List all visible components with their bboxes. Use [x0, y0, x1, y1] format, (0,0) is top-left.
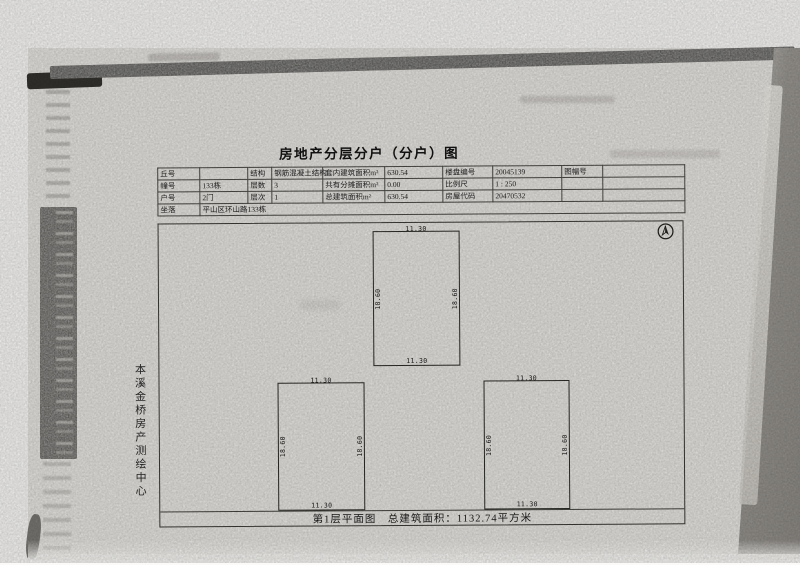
surveying-agency-label: 本溪金桥房产测绘中心: [131, 364, 148, 509]
cell-inner-area-label: 套内建筑面积m²: [323, 167, 385, 179]
dimension-label: 11.30: [311, 501, 332, 509]
cell-empty: [562, 189, 603, 201]
cell-level-label: 层次: [248, 191, 272, 203]
unit-outline-bottom-left: 11.30 11.30 18.60 18.60: [278, 382, 366, 511]
dimension-label: 11.30: [517, 500, 538, 508]
cell-building-no-label: 幢号: [158, 180, 200, 192]
cell-address-value: 平山区环山路133栋: [200, 201, 685, 216]
unit-outline-top: 11.30 11.30 18.60 18.60: [373, 231, 461, 367]
floor-plan-frame: 11.30 11.30 18.60 18.60 11.30 11.30 18.6…: [158, 220, 686, 527]
cell-shared-area-value: 0.00: [385, 178, 443, 190]
dimension-label: 18.60: [451, 287, 459, 309]
scan-bottom-fade: [28, 540, 800, 560]
unit-outline-bottom-right: 11.30 11.30 18.60 18.60: [483, 380, 570, 510]
cell-empty: [603, 177, 685, 190]
cell-house-code-label: 房屋代码: [443, 190, 493, 202]
plan-caption: 第1层平面图 总建筑面积：1132.74平方米: [160, 508, 684, 526]
cell-unit-no-value: 2门: [200, 191, 248, 203]
cell-scale-label: 比例尺: [443, 178, 493, 190]
cell-empty: [603, 189, 685, 202]
dimension-label: 18.60: [279, 436, 287, 458]
cell-scale-value: 1 : 250: [493, 178, 562, 190]
scanned-document-page: 房地产分层分户（分户）图 丘号 结构 钢筋混凝土结构 套内建筑面积m² 630.…: [0, 0, 800, 563]
table-row: 坐落 平山区环山路133栋: [158, 201, 685, 216]
cell-total-area-label: 总建筑面积m²: [323, 191, 385, 203]
dimension-label: 18.60: [374, 288, 382, 310]
dimension-label: 18.60: [356, 435, 364, 457]
north-arrow-icon: [657, 222, 675, 240]
cell-unit-no-label: 户号: [158, 192, 200, 204]
page-title: 房地产分层分户（分户）图: [249, 141, 489, 162]
cell-level-value: 1: [272, 191, 323, 203]
cell-total-area-value: 630.54: [385, 190, 443, 202]
cell-plot-no-value: [200, 167, 248, 179]
dimension-label: 18.60: [485, 434, 493, 456]
cell-structure-value: 钢筋混凝土结构: [272, 167, 323, 179]
cell-sheet-no-value: [603, 165, 685, 178]
dimension-label: 18.60: [561, 433, 569, 455]
dimension-label: 11.30: [406, 357, 427, 365]
cell-inner-area-value: 630.54: [385, 166, 443, 178]
cell-sheet-no-label: 图幅号: [562, 165, 603, 177]
cell-structure-label: 结构: [248, 167, 272, 179]
dimension-label: 11.30: [406, 225, 427, 233]
cell-shared-area-label: 共有分摊面积m²: [323, 179, 385, 191]
cell-plot-no-label: 丘号: [158, 168, 200, 180]
cell-empty: [562, 177, 603, 189]
cell-estate-no-label: 楼盘编号: [443, 166, 493, 178]
cell-house-code-value: 20470532: [493, 190, 562, 202]
dimension-label: 11.30: [516, 374, 537, 382]
cell-floors-label: 层数: [248, 179, 272, 191]
property-info-table: 丘号 结构 钢筋混凝土结构 套内建筑面积m² 630.54 楼盘编号 20045…: [157, 164, 685, 216]
cell-address-label: 坐落: [158, 204, 200, 216]
cell-floors-value: 3: [272, 179, 323, 191]
cell-building-no-value: 133栋: [200, 179, 248, 191]
dimension-label: 11.30: [310, 376, 331, 384]
document-content: 房地产分层分户（分户）图 丘号 结构 钢筋混凝土结构 套内建筑面积m² 630.…: [0, 0, 800, 565]
cell-estate-no-value: 20045139: [493, 166, 562, 178]
